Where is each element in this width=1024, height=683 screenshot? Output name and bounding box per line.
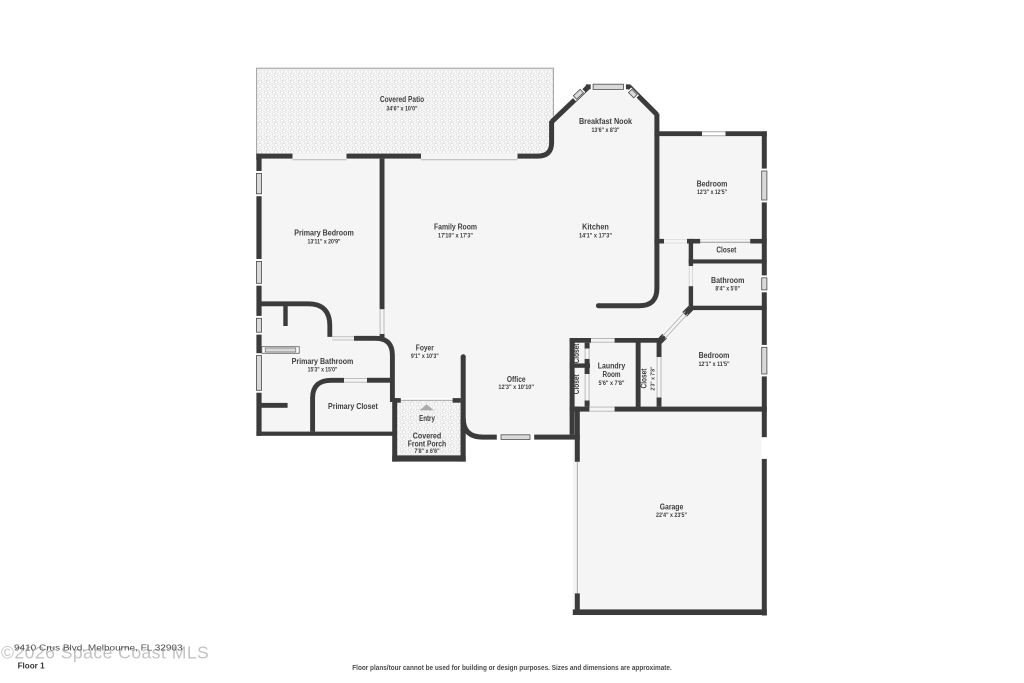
svg-text:Closet: Closet	[716, 244, 736, 254]
svg-text:Bathroom: Bathroom	[711, 275, 745, 285]
svg-text:13'11" x 20'9": 13'11" x 20'9"	[308, 239, 341, 246]
svg-text:Entry: Entry	[419, 413, 435, 423]
svg-text:8'4" x 5'0": 8'4" x 5'0"	[715, 286, 740, 293]
svg-text:22'4" x 23'5": 22'4" x 23'5"	[656, 512, 687, 519]
svg-text:Closet: Closet	[572, 374, 581, 394]
svg-text:Foyer: Foyer	[416, 342, 435, 352]
svg-text:Breakfast Nook: Breakfast Nook	[579, 116, 632, 126]
svg-text:12'1" x 11'5": 12'1" x 11'5"	[698, 361, 729, 368]
svg-text:Closet: Closet	[572, 343, 581, 363]
svg-text:Primary Bedroom: Primary Bedroom	[294, 227, 354, 237]
svg-text:Room: Room	[603, 369, 621, 379]
svg-text:Office: Office	[507, 374, 526, 384]
svg-text:9410 Crus Blvd, Melbourne, FL: 9410 Crus Blvd, Melbourne, FL 32903	[14, 642, 183, 652]
svg-text:15'3" x 15'0": 15'3" x 15'0"	[308, 367, 338, 374]
svg-text:17'10" x 17'3": 17'10" x 17'3"	[438, 233, 473, 240]
svg-text:Floor 1: Floor 1	[18, 660, 45, 670]
svg-text:Bedroom: Bedroom	[699, 350, 730, 360]
svg-text:Bedroom: Bedroom	[697, 178, 728, 188]
svg-text:12'3" x 10'10": 12'3" x 10'10"	[498, 384, 534, 391]
svg-text:5'6" x 7'8": 5'6" x 7'8"	[599, 380, 625, 387]
svg-text:Family Room: Family Room	[434, 221, 477, 231]
svg-text:14'1" x 17'3": 14'1" x 17'3"	[579, 233, 612, 240]
svg-text:Kitchen: Kitchen	[582, 221, 609, 231]
svg-text:12'3" x 12'5": 12'3" x 12'5"	[697, 189, 727, 196]
svg-text:Garage: Garage	[660, 501, 684, 511]
svg-text:9'1" x 10'3": 9'1" x 10'3"	[411, 353, 439, 360]
svg-text:2'3" x 7'8": 2'3" x 7'8"	[651, 366, 657, 390]
svg-text:Covered Patio: Covered Patio	[380, 94, 424, 104]
svg-text:Primary Bathroom: Primary Bathroom	[292, 356, 354, 366]
svg-text:Floor plans/tour cannot be use: Floor plans/tour cannot be used for buil…	[352, 665, 672, 672]
svg-text:Closet: Closet	[639, 368, 649, 388]
svg-text:Primary Closet: Primary Closet	[328, 401, 378, 411]
svg-text:34'6" x 10'0": 34'6" x 10'0"	[386, 106, 417, 113]
svg-text:7'8" x 6'6": 7'8" x 6'6"	[414, 448, 439, 455]
svg-text:13'6" x 8'3": 13'6" x 8'3"	[591, 127, 619, 134]
